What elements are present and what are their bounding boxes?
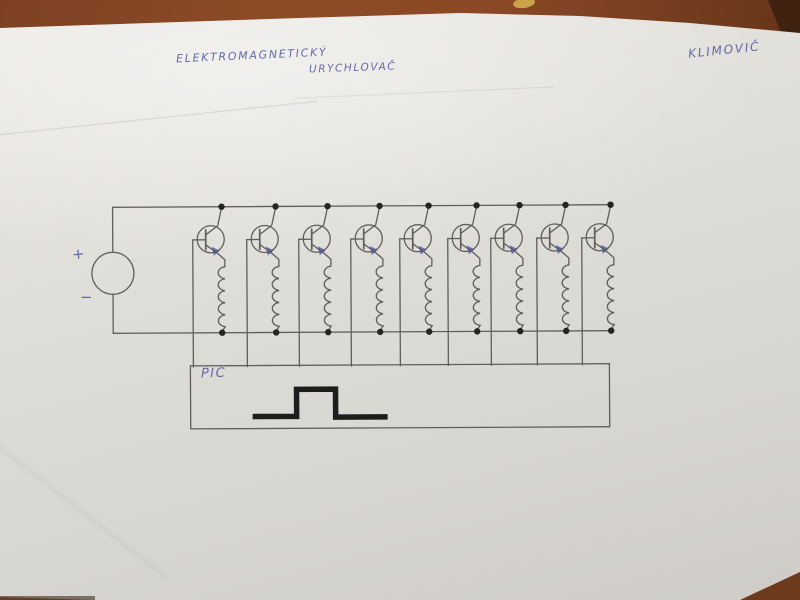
pulse-waveform: [253, 389, 388, 418]
voltage-source-circle: [92, 252, 134, 294]
top-rail: [113, 205, 611, 208]
base-wire: [491, 238, 492, 365]
source-minus-label: −: [80, 288, 93, 306]
photo-of-schematic: ELEKTROMAGNETICKÝ URYCHLOVAČ KLIMOVIČ + …: [0, 0, 800, 600]
junction-dot-bottom: [426, 328, 432, 334]
junction-dot-top: [324, 203, 330, 209]
junction-dot-top: [473, 202, 479, 208]
base-wire: [448, 239, 449, 366]
base-wire: [537, 238, 538, 365]
transistor-collector: [364, 207, 380, 234]
transistor-emitter: [504, 243, 523, 265]
transistor-collector: [461, 206, 477, 233]
junction-dot-bottom: [517, 328, 523, 334]
transistor-emitter: [413, 244, 432, 266]
junction-dot-top: [376, 203, 382, 209]
base-wire: [193, 240, 194, 367]
paper-edge-shadow: [0, 596, 95, 600]
junction-dot-bottom: [325, 329, 331, 335]
pic-controller-label: PIC: [201, 366, 227, 382]
junction-dot-top: [425, 202, 431, 208]
transistor-collector: [550, 206, 566, 233]
junction-dot-bottom: [608, 327, 614, 333]
circuit-svg: [0, 0, 800, 600]
coil: [516, 265, 523, 331]
transistor-collector: [504, 206, 520, 233]
base-wire: [299, 239, 300, 366]
bottom-rail: [113, 331, 611, 334]
junction-dot-top: [562, 202, 568, 208]
transistor-collector: [312, 207, 328, 234]
junction-dot-bottom: [273, 329, 279, 335]
coil: [562, 265, 569, 331]
base-wire: [351, 239, 352, 366]
junction-dot-top: [272, 203, 278, 209]
junction-dot-top: [516, 202, 522, 208]
junction-dot-bottom: [219, 330, 225, 336]
junction-dot-bottom: [563, 328, 569, 334]
junction-dot-bottom: [474, 328, 480, 334]
coil: [272, 266, 279, 332]
transistor-emitter: [461, 243, 480, 265]
transistor-collector: [260, 207, 276, 234]
junction-dot-bottom: [377, 329, 383, 335]
transistor-collector: [413, 207, 429, 234]
junction-dot-top: [218, 204, 224, 210]
coil: [324, 266, 331, 332]
transistor-emitter: [206, 245, 225, 267]
coil: [425, 266, 432, 332]
base-wire: [582, 238, 583, 365]
transistor-collector: [206, 208, 222, 235]
transistor-emitter: [595, 243, 614, 265]
base-wire: [247, 240, 248, 367]
transistor-emitter: [312, 244, 331, 266]
base-wire: [400, 239, 401, 366]
transistor-emitter: [260, 244, 279, 266]
coil: [473, 265, 480, 331]
junction-dot-top: [607, 201, 613, 207]
coil: [607, 265, 614, 331]
coil: [376, 266, 383, 332]
transistor-collector: [595, 206, 611, 233]
source-plus-label: +: [71, 244, 85, 263]
coil: [218, 267, 225, 333]
transistor-emitter: [364, 244, 383, 266]
transistor-emitter: [550, 243, 569, 265]
